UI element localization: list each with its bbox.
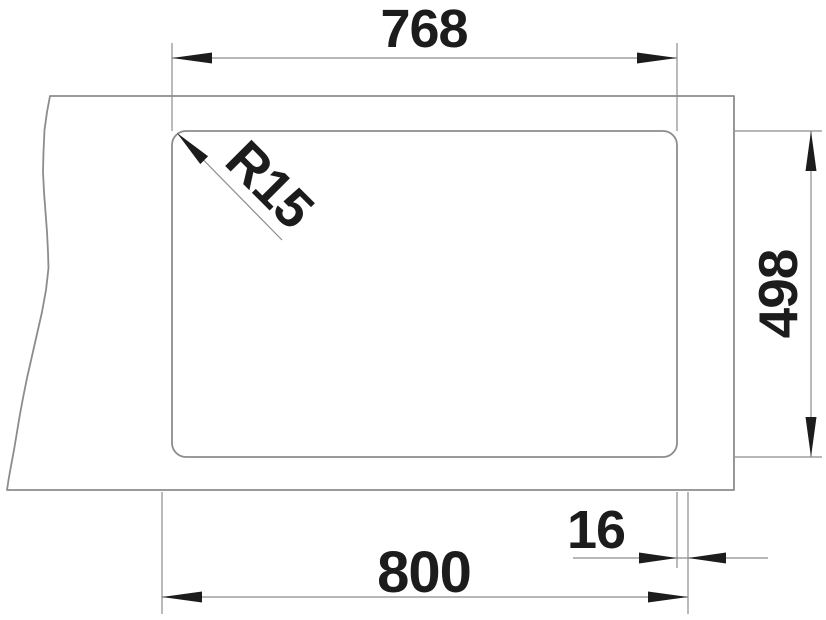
outer-width-label: 800 bbox=[377, 540, 471, 605]
countertop-outline bbox=[7, 96, 734, 490]
arrowhead-top bbox=[806, 131, 817, 171]
rim-offset-label: 16 bbox=[567, 500, 625, 560]
arrowhead-left bbox=[639, 553, 677, 564]
arrowhead-right bbox=[637, 53, 677, 64]
dimension-depth: 498 bbox=[735, 131, 822, 457]
sink-dimension-drawing: 768 R15 498 16 bbox=[0, 0, 826, 620]
leader-arrowhead bbox=[177, 133, 208, 164]
inner-width-label: 768 bbox=[380, 0, 467, 59]
corner-radius-callout: R15 bbox=[177, 130, 324, 240]
corner-radius-label: R15 bbox=[214, 130, 324, 240]
depth-label: 498 bbox=[747, 250, 809, 339]
dimension-drawing-page: 768 R15 498 16 bbox=[0, 0, 826, 620]
arrowhead-right bbox=[688, 553, 726, 564]
dimension-inner-width: 768 bbox=[172, 0, 677, 131]
arrowhead-left bbox=[172, 53, 212, 64]
arrowhead-left bbox=[162, 592, 202, 603]
arrowhead-right bbox=[648, 592, 688, 603]
arrowhead-bottom bbox=[806, 417, 817, 457]
